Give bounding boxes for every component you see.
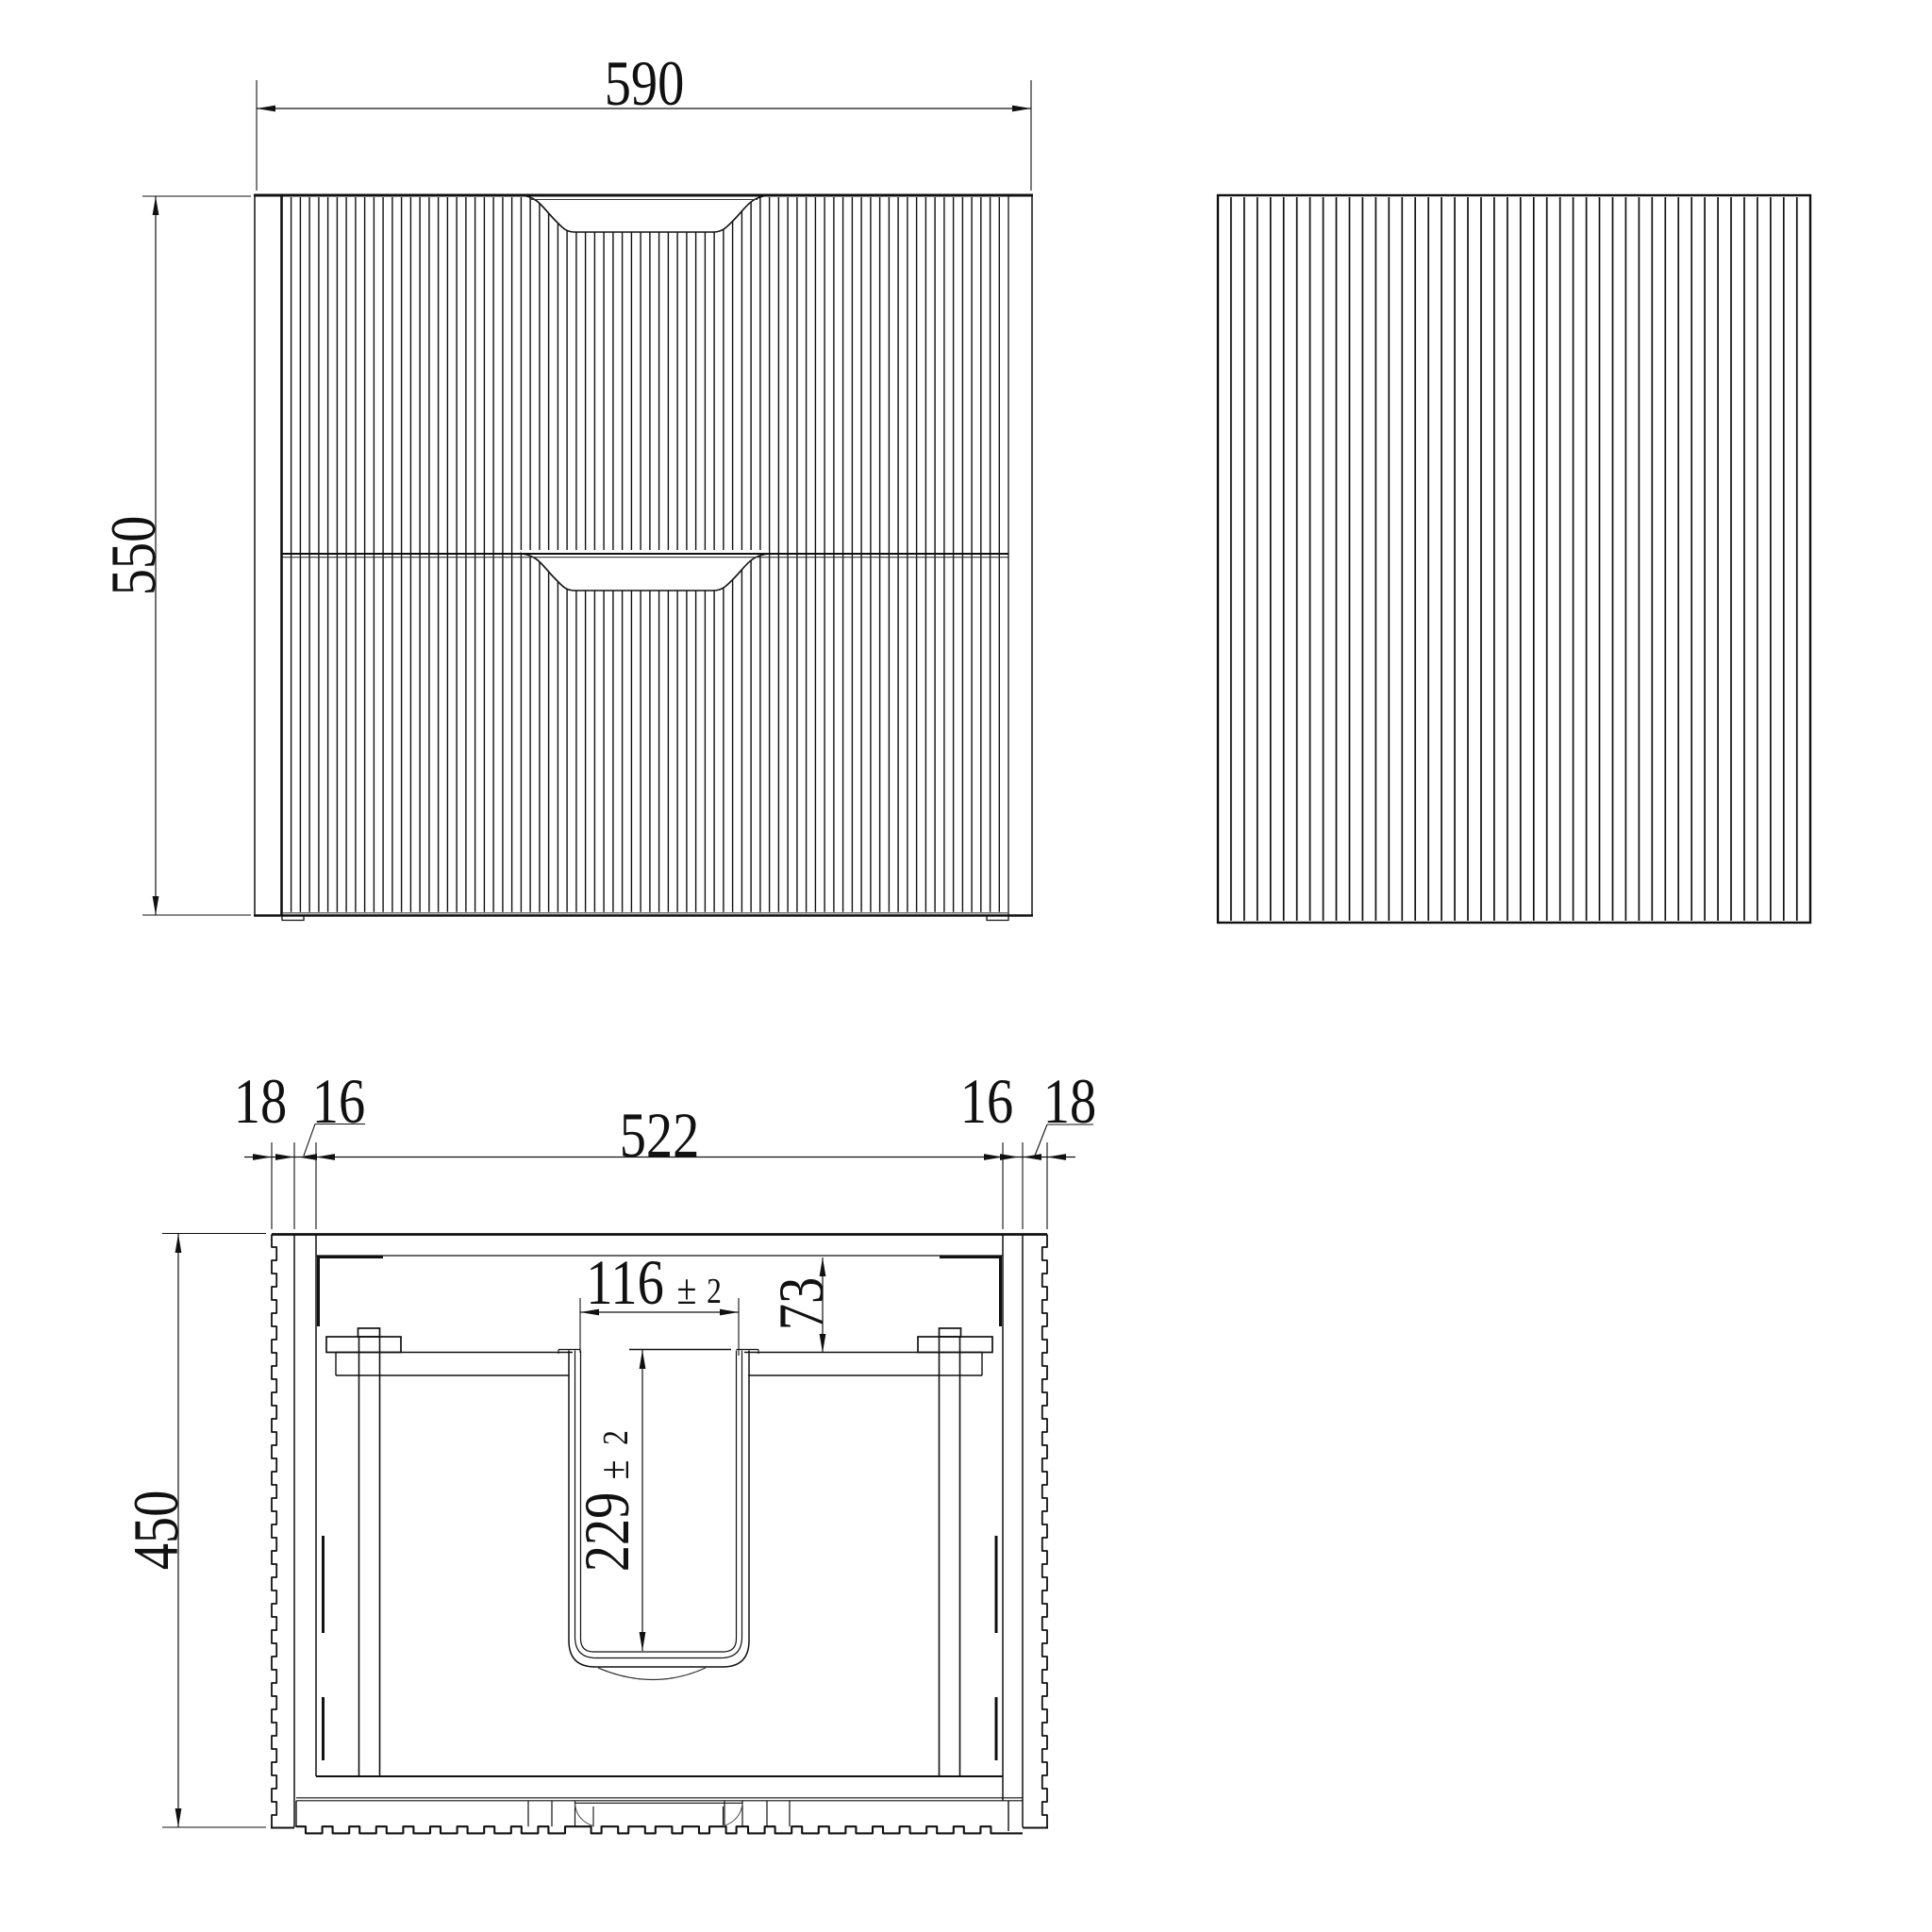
svg-text:±: ± <box>677 1266 697 1314</box>
svg-text:229: 229 <box>571 1492 642 1573</box>
svg-text:450: 450 <box>120 1491 192 1571</box>
svg-text:18: 18 <box>1043 1065 1096 1137</box>
svg-text:±: ± <box>591 1460 639 1480</box>
svg-text:590: 590 <box>605 47 685 119</box>
svg-text:18: 18 <box>234 1065 287 1137</box>
svg-text:116: 116 <box>586 1246 664 1318</box>
svg-text:16: 16 <box>312 1065 365 1137</box>
svg-text:16: 16 <box>960 1065 1013 1137</box>
svg-text:73: 73 <box>765 1277 837 1330</box>
svg-text:522: 522 <box>620 1099 700 1171</box>
svg-text:2: 2 <box>707 1271 722 1310</box>
svg-text:2: 2 <box>595 1430 635 1445</box>
svg-text:550: 550 <box>97 516 169 596</box>
